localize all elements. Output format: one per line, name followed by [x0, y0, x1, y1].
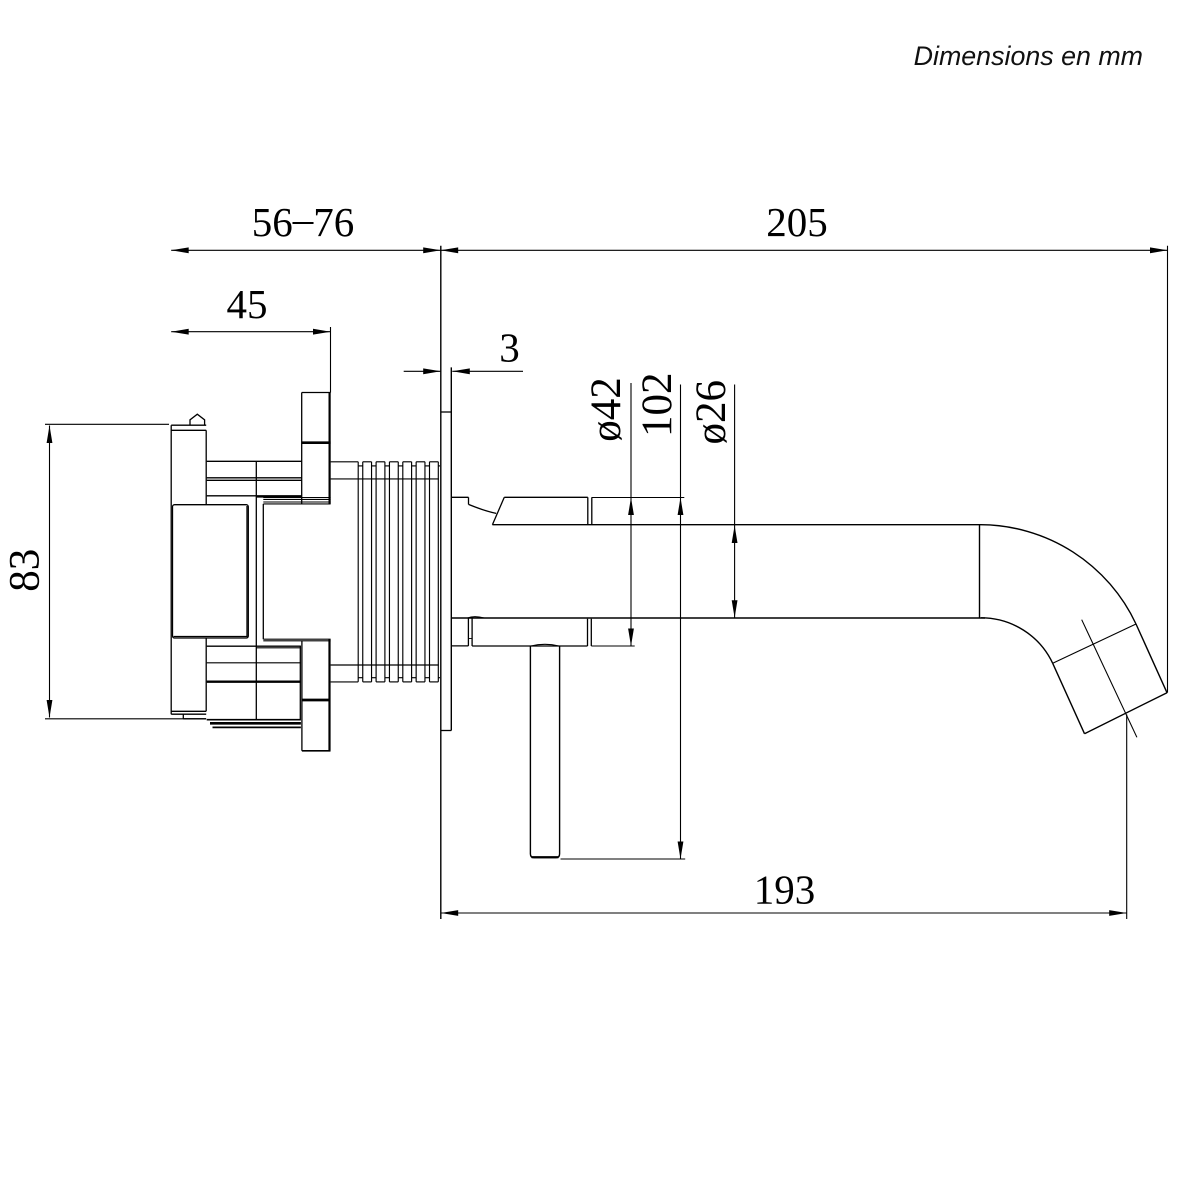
svg-text:ø26: ø26 — [688, 380, 735, 445]
svg-text:3: 3 — [499, 325, 520, 371]
svg-text:Dimensions en mm: Dimensions en mm — [914, 41, 1143, 71]
svg-text:ø42: ø42 — [583, 377, 630, 442]
svg-text:205: 205 — [766, 199, 828, 245]
svg-text:45: 45 — [227, 281, 268, 327]
svg-text:193: 193 — [754, 867, 816, 913]
svg-text:56–76: 56–76 — [252, 196, 355, 246]
svg-text:83: 83 — [2, 549, 49, 592]
svg-text:102: 102 — [634, 372, 681, 437]
